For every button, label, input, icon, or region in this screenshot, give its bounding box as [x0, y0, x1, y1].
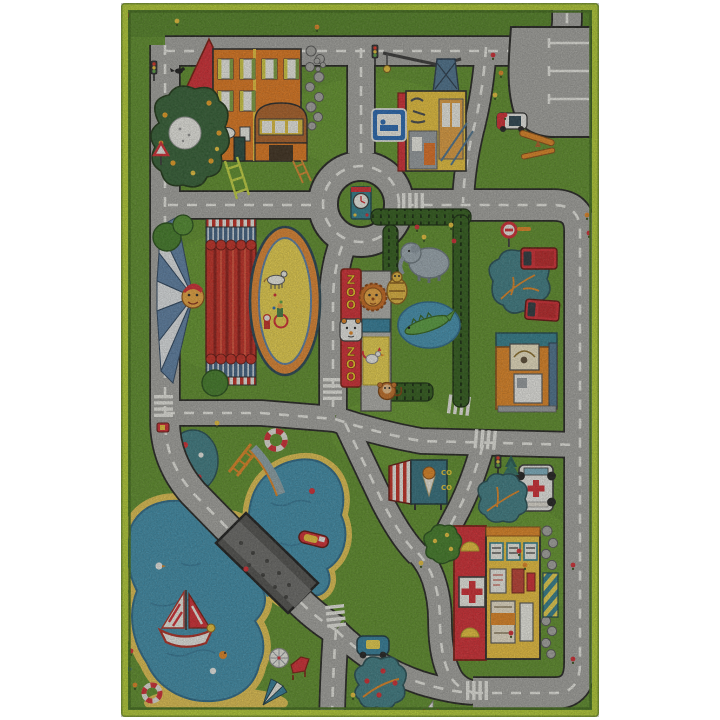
play-rug: ZOO ZOO	[121, 3, 599, 717]
rug-art: ZOO ZOO	[121, 3, 599, 717]
carpet-grain-light	[121, 3, 599, 717]
product-photo: ZOO ZOO	[0, 0, 720, 720]
